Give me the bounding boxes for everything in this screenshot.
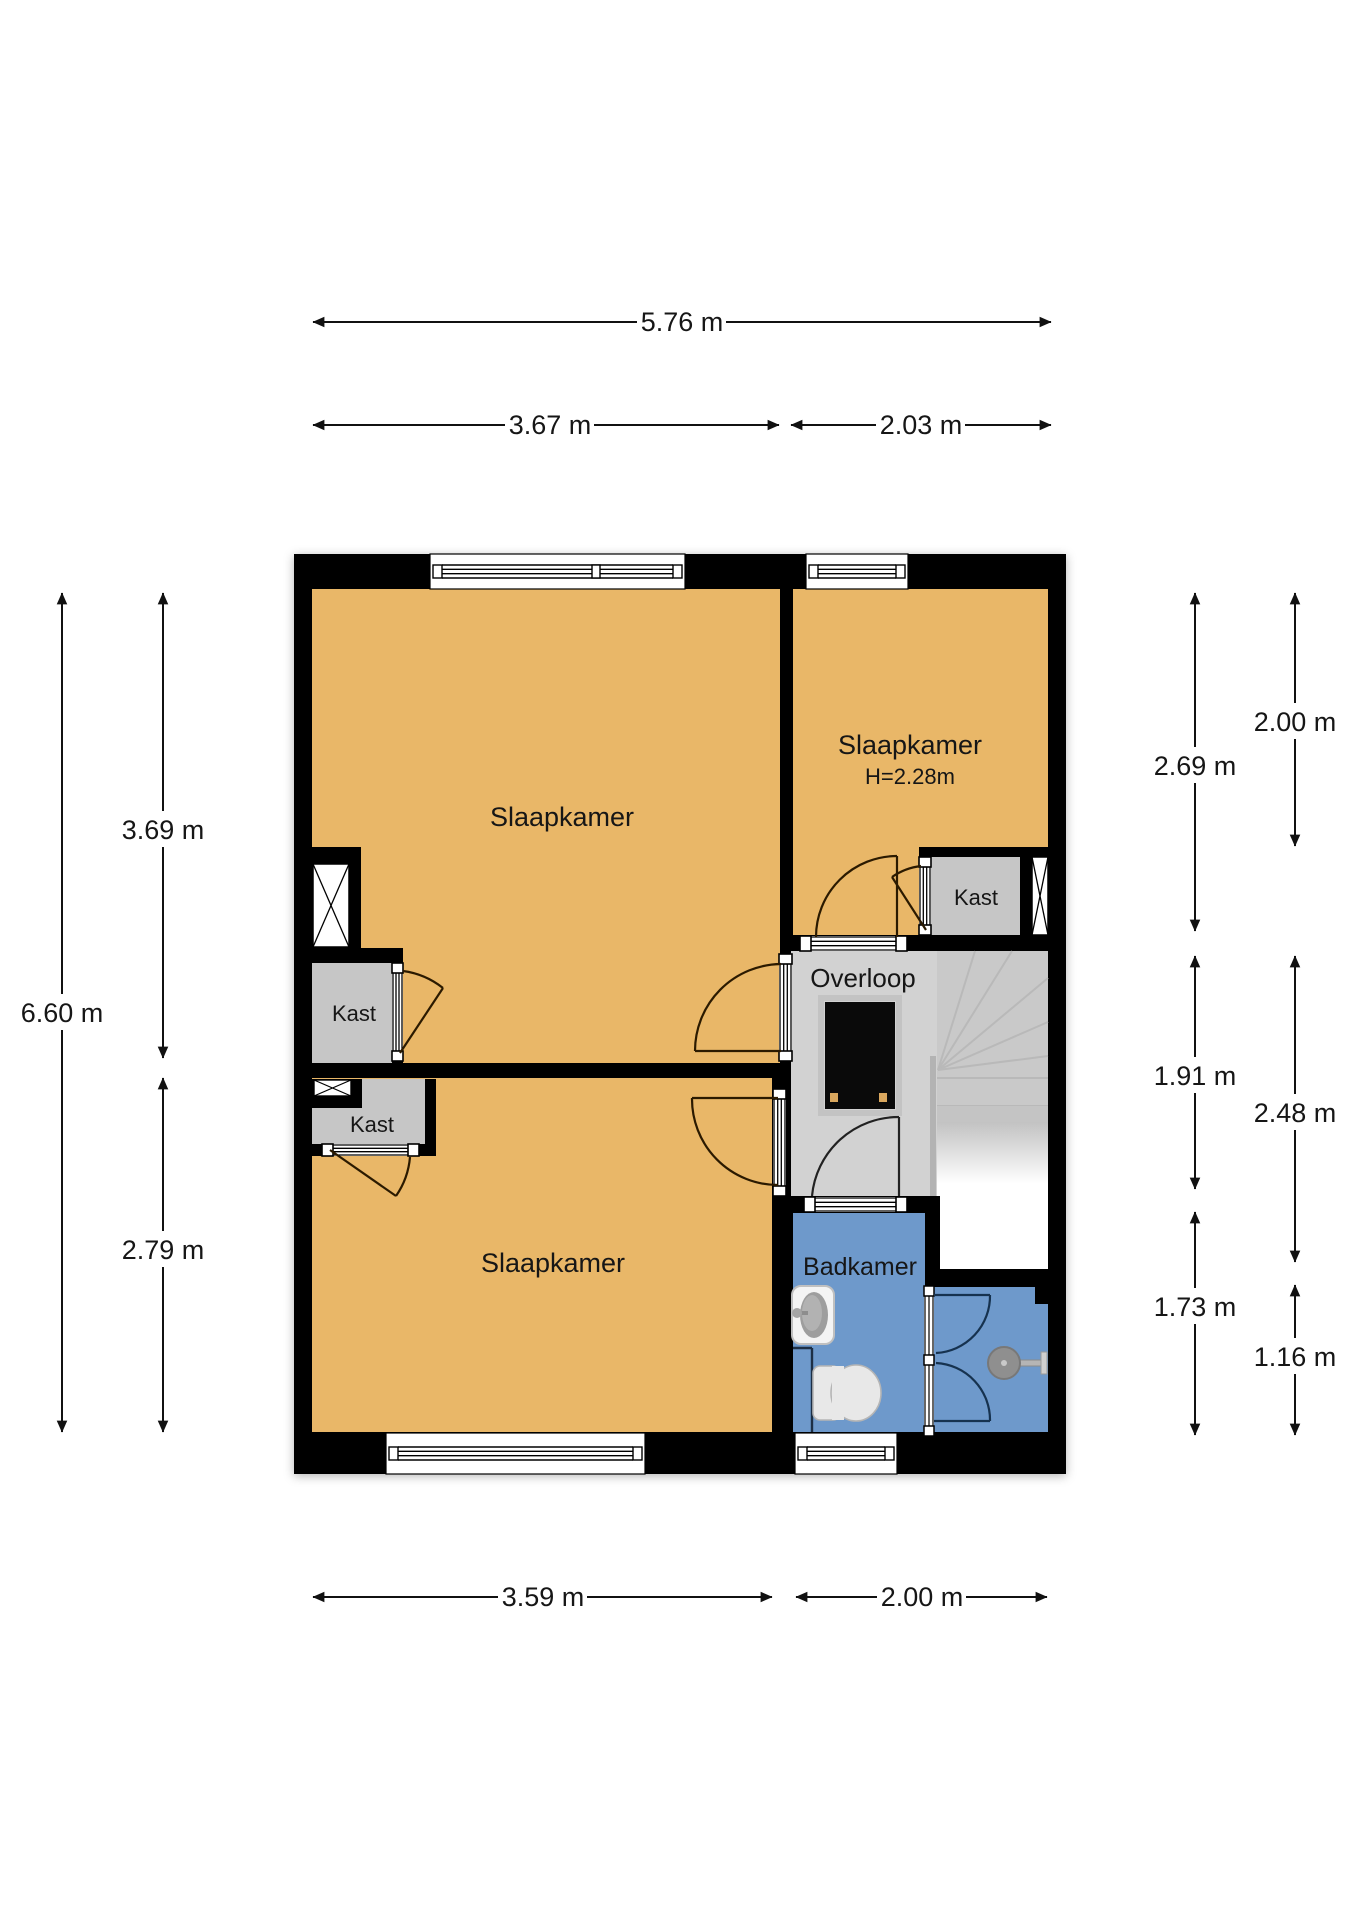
- svg-text:3.59 m: 3.59 m: [502, 1582, 585, 1612]
- svg-text:2.00 m: 2.00 m: [1254, 707, 1337, 737]
- svg-text:H=2.28m: H=2.28m: [865, 764, 955, 789]
- svg-text:2.48 m: 2.48 m: [1254, 1098, 1337, 1128]
- svg-text:3.69 m: 3.69 m: [122, 815, 205, 845]
- svg-text:Slaapkamer: Slaapkamer: [481, 1248, 625, 1278]
- svg-text:Slaapkamer: Slaapkamer: [490, 802, 634, 832]
- svg-text:2.03 m: 2.03 m: [880, 410, 963, 440]
- svg-text:Overloop: Overloop: [810, 963, 916, 993]
- svg-text:3.67 m: 3.67 m: [509, 410, 592, 440]
- svg-text:1.73 m: 1.73 m: [1154, 1292, 1237, 1322]
- svg-text:2.79 m: 2.79 m: [122, 1235, 205, 1265]
- svg-text:6.60 m: 6.60 m: [21, 998, 104, 1028]
- svg-text:5.76 m: 5.76 m: [641, 307, 724, 337]
- svg-text:Badkamer: Badkamer: [803, 1253, 917, 1281]
- svg-text:Kast: Kast: [332, 1001, 376, 1026]
- svg-text:1.16 m: 1.16 m: [1254, 1342, 1337, 1372]
- svg-text:1.91 m: 1.91 m: [1154, 1061, 1237, 1091]
- svg-text:Slaapkamer: Slaapkamer: [838, 730, 982, 760]
- svg-text:2.69 m: 2.69 m: [1154, 751, 1237, 781]
- svg-text:2.00 m: 2.00 m: [881, 1582, 964, 1612]
- svg-text:Kast: Kast: [350, 1112, 394, 1137]
- svg-text:Kast: Kast: [954, 885, 998, 910]
